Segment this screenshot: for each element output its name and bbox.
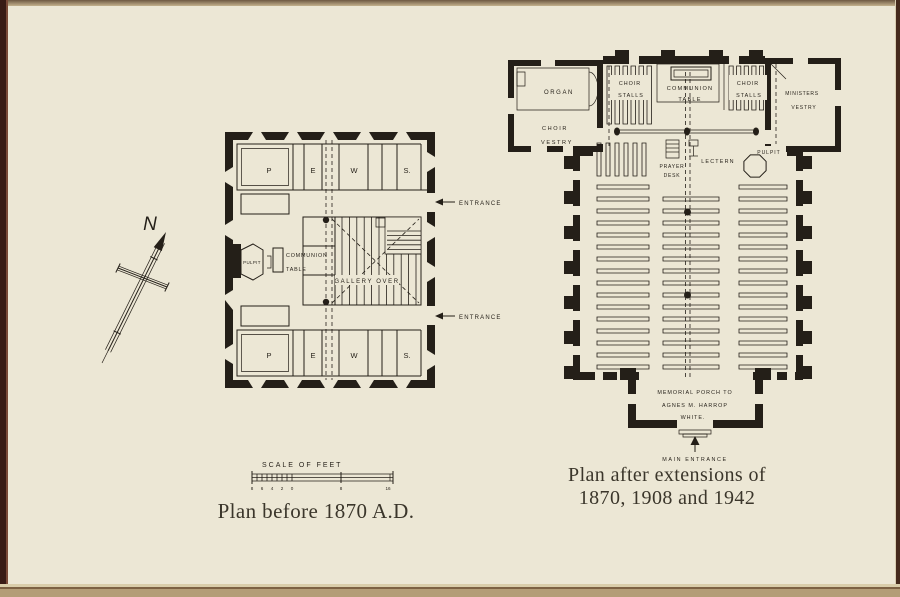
prayer-desk-label-2: DESK: [664, 173, 681, 179]
compass-needle: [102, 232, 169, 363]
page-edge-bottom: [0, 584, 900, 597]
scale-number: 8: [251, 486, 254, 491]
pew-letter: P: [266, 351, 271, 360]
communion-label: COMMUNION: [286, 253, 328, 259]
caption-plan-after-line2: 1870, 1908 and 1942: [557, 487, 777, 510]
pulpit-label: PULPIT: [757, 150, 781, 156]
scale-number: 16: [385, 486, 391, 491]
choir-stalls-right-label-1: CHOIR: [737, 81, 759, 87]
ministers-vestry-label-1: MINISTERS: [785, 91, 819, 97]
pews-center-block: [663, 197, 719, 369]
plan-after-drawing: ORGAN CHOIR VESTRY MINISTERS VESTRY COMM…: [503, 48, 848, 466]
ministers-vestry-wing: MINISTERS VESTRY: [765, 58, 841, 152]
page-edge-right: [895, 0, 900, 597]
entrance-label-lower: ENTRANCE: [459, 315, 502, 321]
scale-number: 6: [261, 486, 264, 491]
choir-vestry-wing: ORGAN CHOIR VESTRY: [508, 60, 603, 152]
gallery-label: GALLERY OVER: [334, 279, 399, 285]
new-communion-table: [671, 67, 711, 80]
new-pulpit: PULPIT: [744, 146, 786, 177]
pew-letter: E: [310, 166, 315, 175]
main-entrance-label: MAIN ENTRANCE: [662, 457, 727, 463]
chancel: COMMUNION TABLE CHOIR STALLS CHOIR STALL…: [603, 50, 767, 146]
side-pews: [597, 143, 646, 176]
entrance-arrow-lower: [435, 313, 443, 320]
buttresses-left: [564, 156, 573, 379]
plan-before-drawing: GALLERY OVER PULPIT COMMUNION TABLE P E …: [225, 132, 510, 394]
pew-letter: W: [350, 351, 358, 360]
pew-letter: S.: [403, 351, 410, 360]
scale-title: SCALE OF FEET: [262, 462, 342, 469]
pew-letter: P: [266, 166, 271, 175]
pew-letter: S.: [403, 166, 410, 175]
entrance-arrow-upper: [435, 199, 443, 206]
choir-stalls-left-label-2: STALLS: [618, 93, 644, 99]
entrance-label-upper: ENTRANCE: [459, 201, 502, 207]
choir-stalls-left-label-1: CHOIR: [619, 81, 641, 87]
caption-plan-before: Plan before 1870 A.D.: [206, 499, 426, 524]
caption-plan-after-line1: Plan after extensions of: [557, 464, 777, 487]
table-label: TABLE: [286, 267, 307, 273]
roof-post: [684, 209, 691, 216]
prayer-desk-label-1: PRAYER: [660, 164, 685, 170]
organ-label: ORGAN: [544, 90, 574, 96]
main-entrance-annotation: MAIN ENTRANCE: [662, 436, 727, 463]
pew-letter: E: [310, 351, 315, 360]
scale-number: 0: [291, 486, 294, 491]
choir-vestry-label-2: VESTRY: [541, 140, 573, 146]
pulpit-label: PULPIT: [243, 260, 261, 265]
book-page: { "page": { "paper_color": "#ece7d5", "i…: [0, 0, 900, 597]
north-compass: N: [90, 200, 200, 375]
compass-north-label: N: [143, 214, 157, 235]
scale-number: 2: [281, 486, 284, 491]
porch-label-3: WHITE.: [681, 415, 706, 421]
porch-label-1: MEMORIAL PORCH TO: [657, 390, 732, 396]
scale-number: 4: [271, 486, 274, 491]
page-edge-left: [0, 0, 8, 597]
roof-post: [684, 292, 691, 299]
ministers-vestry-label-2: VESTRY: [791, 105, 816, 111]
pews-right-block: [739, 185, 787, 369]
scale-of-feet: SCALE OF FEET 8 6 4 2 0 8 16: [238, 456, 408, 498]
choir-vestry-label-1: CHOIR: [542, 126, 568, 132]
prayer-desk: PRAYER DESK: [660, 140, 685, 179]
entrance-annotations: ENTRANCE ENTRANCE: [435, 199, 502, 321]
pews-left-block: [597, 185, 649, 369]
lectern: LECTERN: [689, 140, 735, 165]
scale-number: 8: [340, 486, 343, 491]
porch-label-2: AGNES M. HARROP: [662, 403, 728, 409]
pew-letter: W: [350, 166, 358, 175]
buttresses-right: [803, 156, 812, 379]
choir-stalls-right-label-2: STALLS: [736, 93, 762, 99]
page-edge-top: [0, 0, 900, 6]
lectern-label: LECTERN: [701, 159, 735, 165]
memorial-porch: MEMORIAL PORCH TO AGNES M. HARROP WHITE.: [620, 368, 771, 437]
caption-plan-after: Plan after extensions of 1870, 1908 and …: [557, 464, 777, 510]
